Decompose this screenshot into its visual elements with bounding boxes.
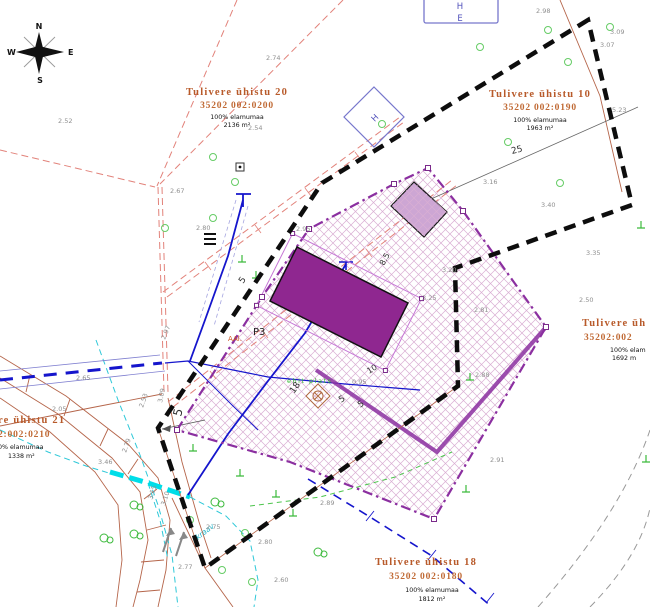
parcel-cadastral: 35202 002:0180 bbox=[389, 572, 463, 582]
spot-height: 3.09 bbox=[610, 28, 624, 36]
spot-height: 2.60 bbox=[274, 576, 288, 584]
point-label-p3: P3 bbox=[253, 327, 265, 338]
compass-e: E bbox=[68, 48, 73, 57]
parcel-area: 1692 m bbox=[612, 355, 636, 362]
parcel-name: re ühistu 21 bbox=[0, 415, 65, 426]
spot-height: 2.05 bbox=[52, 405, 66, 413]
spot-height: 3.16 bbox=[483, 178, 497, 186]
parcel-area: 1338 m² bbox=[8, 453, 35, 460]
spot-height: 3.20 bbox=[442, 266, 456, 274]
parcel-usage: 100% elamumaa bbox=[210, 114, 264, 121]
spot-height: 2.52 bbox=[58, 117, 72, 125]
soil-code-label: AAl. bbox=[228, 335, 242, 343]
parcel-cadastral: 35202 002:0190 bbox=[503, 103, 577, 113]
parcel-usage: 100% elam bbox=[610, 347, 646, 354]
shed-label-e: E bbox=[457, 14, 462, 24]
compass-n: N bbox=[36, 22, 43, 31]
spot-height: 0.95 bbox=[352, 378, 366, 386]
spot-height: 3.25 bbox=[422, 294, 436, 302]
spot-height: 5.23 bbox=[612, 106, 626, 114]
spot-height: 2.75 bbox=[206, 523, 220, 531]
spot-height: 2.88 bbox=[475, 371, 489, 379]
parcel-name: Tulivere ühistu 10 bbox=[489, 89, 591, 100]
parcel-usage: 100% elamumaa bbox=[405, 587, 459, 594]
spot-height: 2.80 bbox=[196, 224, 210, 232]
parcel-area: 2136 m² bbox=[224, 122, 251, 129]
spot-height: 2.74 bbox=[266, 54, 280, 62]
parcel-cadastral: 2:002:0210 bbox=[0, 430, 50, 440]
spot-height: 2.67 bbox=[170, 187, 184, 195]
parcel-usage: 100% elamumaa bbox=[513, 117, 567, 124]
spot-height: 2.80 bbox=[258, 538, 272, 546]
parcel-area: 1963 m² bbox=[527, 125, 554, 132]
culvert-bars-icon bbox=[204, 233, 216, 245]
map-canvas: H E H N E S W Tulivere ühistu 20 35202 0… bbox=[0, 0, 650, 607]
compass-s: S bbox=[37, 76, 43, 85]
spot-height: 2.95 bbox=[296, 225, 310, 233]
spot-height: 3.46 bbox=[98, 458, 112, 466]
compass-w: W bbox=[7, 48, 16, 57]
spot-height: 2.89 bbox=[320, 499, 334, 507]
spot-height: 3.40 bbox=[541, 201, 555, 209]
spot-height: 2.54 bbox=[248, 124, 262, 132]
parcel-name: Tulivere ühistu 18 bbox=[375, 557, 477, 568]
spot-height: 2.98 bbox=[536, 7, 550, 15]
spot-height: 2.81 bbox=[474, 306, 488, 314]
parcel-name: Tulivere ühistu 20 bbox=[186, 87, 288, 98]
shed-label-h: H bbox=[457, 2, 463, 12]
spot-height: 3.35 bbox=[586, 249, 600, 257]
parcel-usage: 0% elamumaa bbox=[0, 444, 44, 451]
spot-height: 3.07 bbox=[600, 41, 614, 49]
spot-height: 2.50 bbox=[579, 296, 593, 304]
spot-height: 2.77 bbox=[178, 563, 192, 571]
parcel-cadastral: 35202 002:0200 bbox=[200, 101, 274, 111]
spot-height: 2.91 bbox=[490, 456, 504, 464]
parcel-area: 1812 m² bbox=[419, 596, 446, 603]
parcel-cadastral: 35202:002 bbox=[584, 333, 632, 343]
parcel-name: Tulivere üh bbox=[582, 318, 646, 329]
spot-height: 2.65 bbox=[76, 374, 90, 382]
cadastral-map: H E H N E S W Tulivere ühistu 20 35202 0… bbox=[0, 0, 650, 607]
